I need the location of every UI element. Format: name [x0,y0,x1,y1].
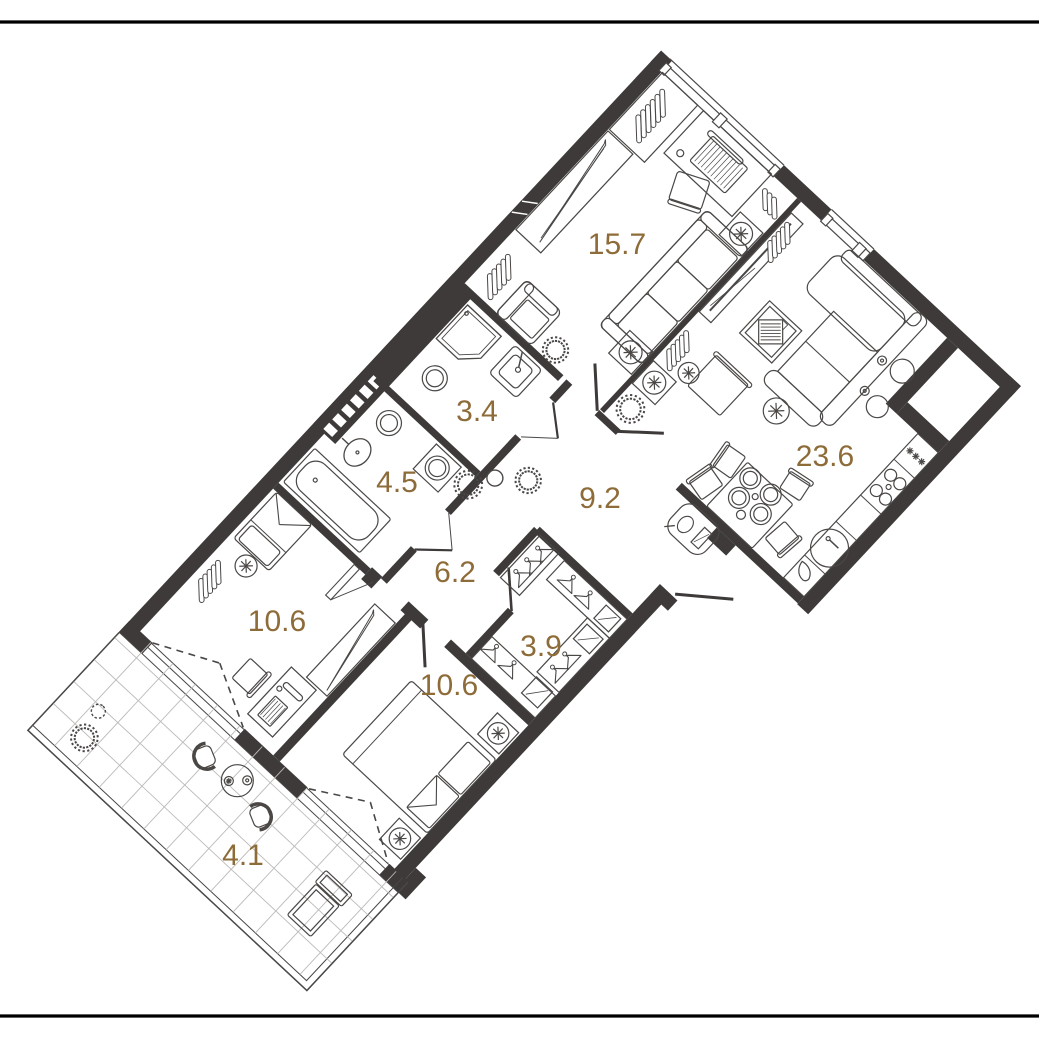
svg-text:3.4: 3.4 [456,395,498,428]
svg-text:10.6: 10.6 [248,605,306,638]
svg-text:6.2: 6.2 [434,556,476,589]
svg-text:4.1: 4.1 [222,839,264,872]
svg-text:9.2: 9.2 [579,482,621,515]
svg-text:15.7: 15.7 [588,228,646,261]
svg-text:3.9: 3.9 [520,630,562,663]
svg-text:23.6: 23.6 [796,440,854,473]
svg-text:4.5: 4.5 [376,466,418,499]
svg-text:10.6: 10.6 [420,669,478,702]
